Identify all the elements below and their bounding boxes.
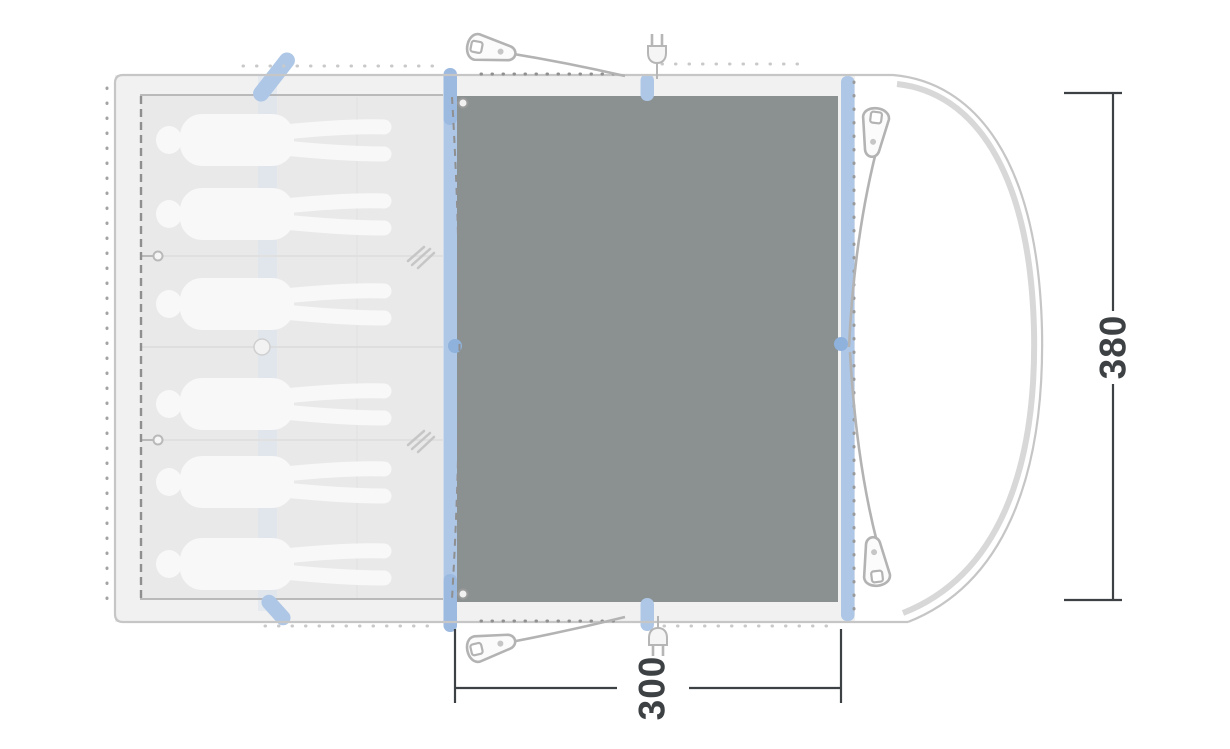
tent-floorplan: 380 300 (0, 0, 1230, 749)
tent-peg-icon (859, 536, 891, 588)
porch-front-pole-curve (897, 84, 1034, 613)
dimension-depth-label: 380 (1093, 315, 1134, 380)
pole-tab-top (641, 74, 655, 101)
sleeping-cabin (140, 76, 443, 611)
pole-strip-top-capsule (444, 68, 458, 125)
living-area-groundsheet (457, 96, 838, 602)
tent-peg-icon (465, 628, 518, 664)
pole-tab-bottom (641, 598, 655, 631)
porch-front-outline (893, 75, 1042, 622)
tent-peg-icon (858, 107, 890, 159)
power-plug-icon (648, 34, 666, 79)
floorplan-canvas: 380 300 (0, 0, 1230, 749)
pole-strip-bottom-capsule (444, 574, 458, 632)
dimension-width-label: 300 (632, 656, 673, 721)
hanging-ring-icon (254, 339, 270, 355)
pole-joint-dot (834, 337, 848, 351)
tent-peg-icon (465, 32, 518, 67)
